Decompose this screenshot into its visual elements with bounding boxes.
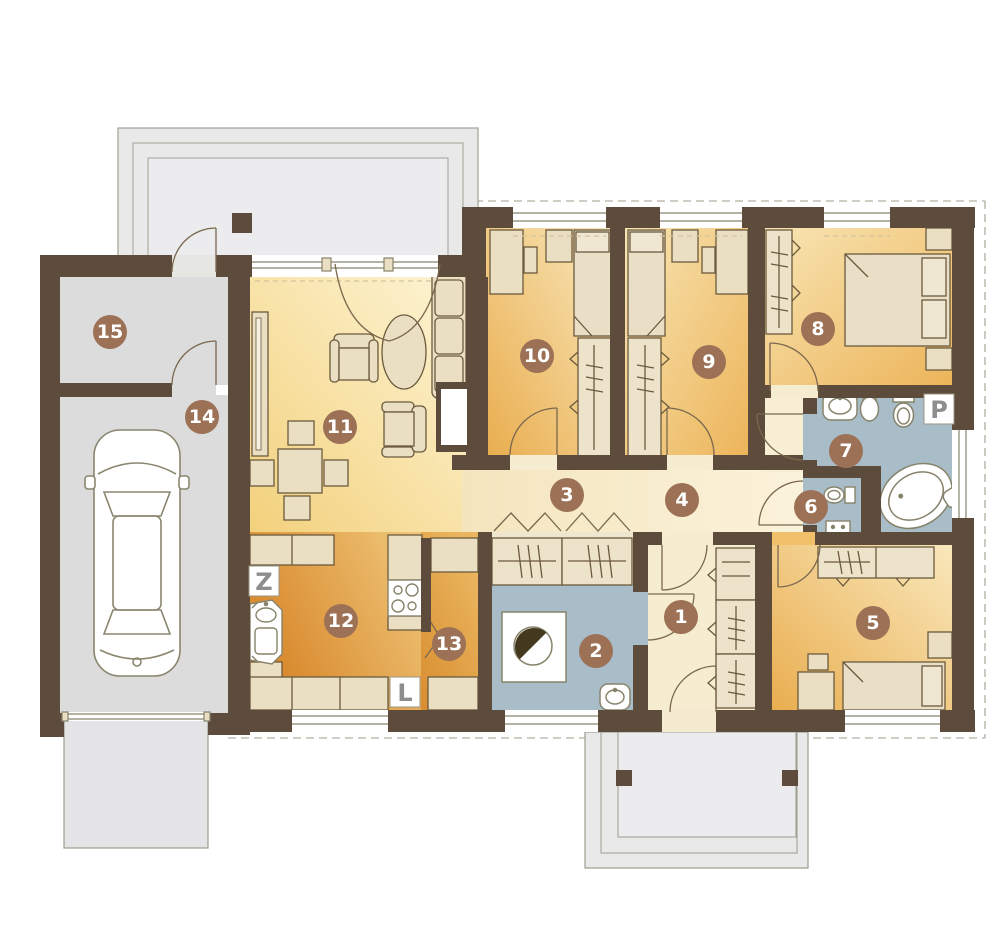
armchair <box>330 334 378 382</box>
room-badge-1: 1 <box>664 600 698 634</box>
counter <box>250 677 388 710</box>
room-badge-13: 13 <box>432 627 466 661</box>
bed <box>628 230 665 336</box>
window-bathroom-2 <box>505 710 598 732</box>
room-badge-12: 12 <box>324 604 358 638</box>
marker-L: L <box>390 677 420 707</box>
floor-plan-page: 123456789101112131415ZLP <box>0 0 1000 940</box>
counter <box>431 538 478 572</box>
toilet-icon <box>824 487 855 503</box>
entrance-porch <box>585 732 808 868</box>
room-badge-4: 4 <box>665 483 699 517</box>
svg-text:11: 11 <box>327 416 353 438</box>
coffee-table <box>382 315 426 389</box>
desk <box>716 230 748 294</box>
svg-text:10: 10 <box>524 345 550 367</box>
chair <box>702 247 715 273</box>
nightstand <box>926 228 952 250</box>
desk <box>490 230 523 294</box>
nightstand <box>928 632 952 658</box>
room-15-floor <box>60 277 228 385</box>
window-bedroom-10 <box>513 207 606 228</box>
svg-text:L: L <box>397 679 412 707</box>
shelf <box>672 230 698 262</box>
room-badge-9: 9 <box>692 345 726 379</box>
porch-column <box>616 770 632 786</box>
svg-text:1: 1 <box>674 606 687 628</box>
chair <box>808 654 828 670</box>
svg-text:13: 13 <box>436 633 462 655</box>
window-bedroom-9 <box>660 207 742 228</box>
svg-text:6: 6 <box>804 496 817 518</box>
svg-text:P: P <box>930 396 948 424</box>
counter <box>388 616 422 630</box>
room-badge-7: 7 <box>829 434 863 468</box>
small-sink-icon <box>826 521 850 533</box>
svg-text:8: 8 <box>811 318 824 340</box>
bed <box>843 662 945 710</box>
garage-door <box>62 712 210 721</box>
room-badge-2: 2 <box>579 634 613 668</box>
room-badge-6: 6 <box>794 490 828 524</box>
chair <box>524 247 537 273</box>
room-badge-3: 3 <box>550 478 584 512</box>
armchair <box>382 402 426 457</box>
svg-text:12: 12 <box>328 610 354 632</box>
desk <box>798 672 834 710</box>
svg-text:14: 14 <box>189 406 215 428</box>
hallway-floor <box>462 468 817 532</box>
car-icon <box>85 430 189 676</box>
double-bed <box>845 254 950 346</box>
svg-text:2: 2 <box>589 640 602 662</box>
sofa <box>432 272 466 398</box>
room-badge-15: 15 <box>93 315 127 349</box>
svg-text:5: 5 <box>866 612 879 634</box>
marker-P: P <box>924 394 954 424</box>
window-bedroom-8 <box>824 207 890 228</box>
marker-Z: Z <box>249 566 279 596</box>
svg-text:3: 3 <box>560 484 573 506</box>
porch-column <box>782 770 798 786</box>
svg-text:Z: Z <box>255 568 272 596</box>
shelf <box>546 230 572 262</box>
room-badge-8: 8 <box>801 312 835 346</box>
terrace-column <box>232 213 252 233</box>
counter <box>428 677 478 710</box>
window-bathroom-7 <box>952 430 974 518</box>
window-kitchen <box>292 710 388 732</box>
kitchen-sink-icon <box>250 600 282 664</box>
floor-plan-drawing: 123456789101112131415ZLP <box>0 0 1000 940</box>
window-bedroom-5 <box>845 710 940 732</box>
room-badge-5: 5 <box>856 606 890 640</box>
svg-text:9: 9 <box>702 351 715 373</box>
counter <box>388 535 422 580</box>
stove-icon <box>388 580 422 616</box>
svg-text:7: 7 <box>839 440 852 462</box>
fireplace-niche-inner <box>441 389 467 445</box>
bed <box>574 230 611 336</box>
svg-text:4: 4 <box>675 489 688 511</box>
nightstand <box>926 348 952 370</box>
room-badge-11: 11 <box>323 410 357 444</box>
sink-icon <box>600 684 630 710</box>
room-badge-10: 10 <box>520 339 554 373</box>
driveway <box>64 714 208 848</box>
svg-text:15: 15 <box>97 321 123 343</box>
room-badge-14: 14 <box>185 400 219 434</box>
terrace-sliding-door <box>252 255 438 277</box>
